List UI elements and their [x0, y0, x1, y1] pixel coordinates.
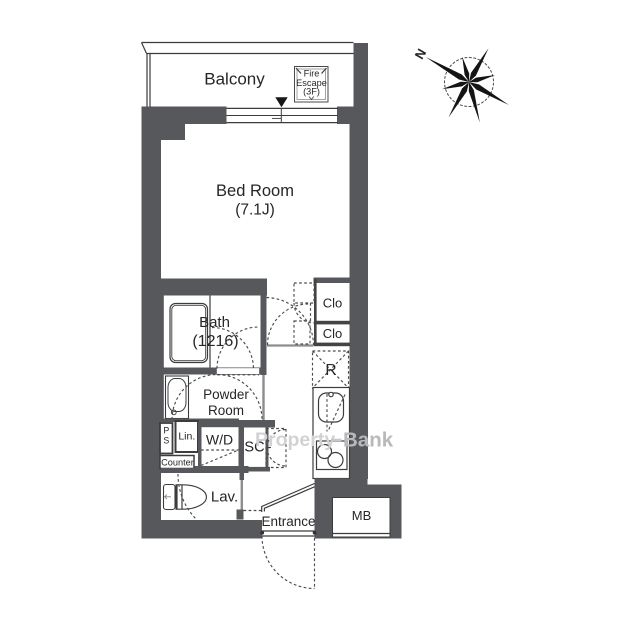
svg-text:Clo: Clo: [323, 296, 343, 311]
svg-text:Bath: Bath: [199, 314, 230, 331]
svg-text:Lav.: Lav.: [211, 489, 238, 506]
svg-text:W/D: W/D: [206, 432, 233, 448]
svg-text:MB: MB: [352, 508, 372, 523]
svg-text:(1216): (1216): [192, 333, 238, 350]
svg-text:Bank: Bank: [343, 429, 394, 452]
svg-text:Lin.: Lin.: [178, 431, 195, 443]
svg-text:(7.1J): (7.1J): [235, 202, 275, 219]
svg-text:Property: Property: [255, 429, 335, 451]
svg-text:Powder: Powder: [203, 387, 249, 402]
svg-text:(3F): (3F): [303, 87, 320, 97]
svg-text:R: R: [325, 362, 336, 379]
svg-text:P: P: [163, 426, 169, 436]
svg-text:Entrance: Entrance: [261, 514, 315, 529]
svg-text:Bed Room: Bed Room: [216, 182, 294, 200]
svg-text:Fire: Fire: [304, 69, 320, 79]
svg-text:Room: Room: [208, 403, 244, 418]
svg-text:S: S: [163, 436, 169, 446]
svg-text:Clo: Clo: [323, 326, 343, 341]
svg-text:Balcony: Balcony: [204, 70, 265, 89]
svg-text:Counter: Counter: [161, 457, 194, 467]
